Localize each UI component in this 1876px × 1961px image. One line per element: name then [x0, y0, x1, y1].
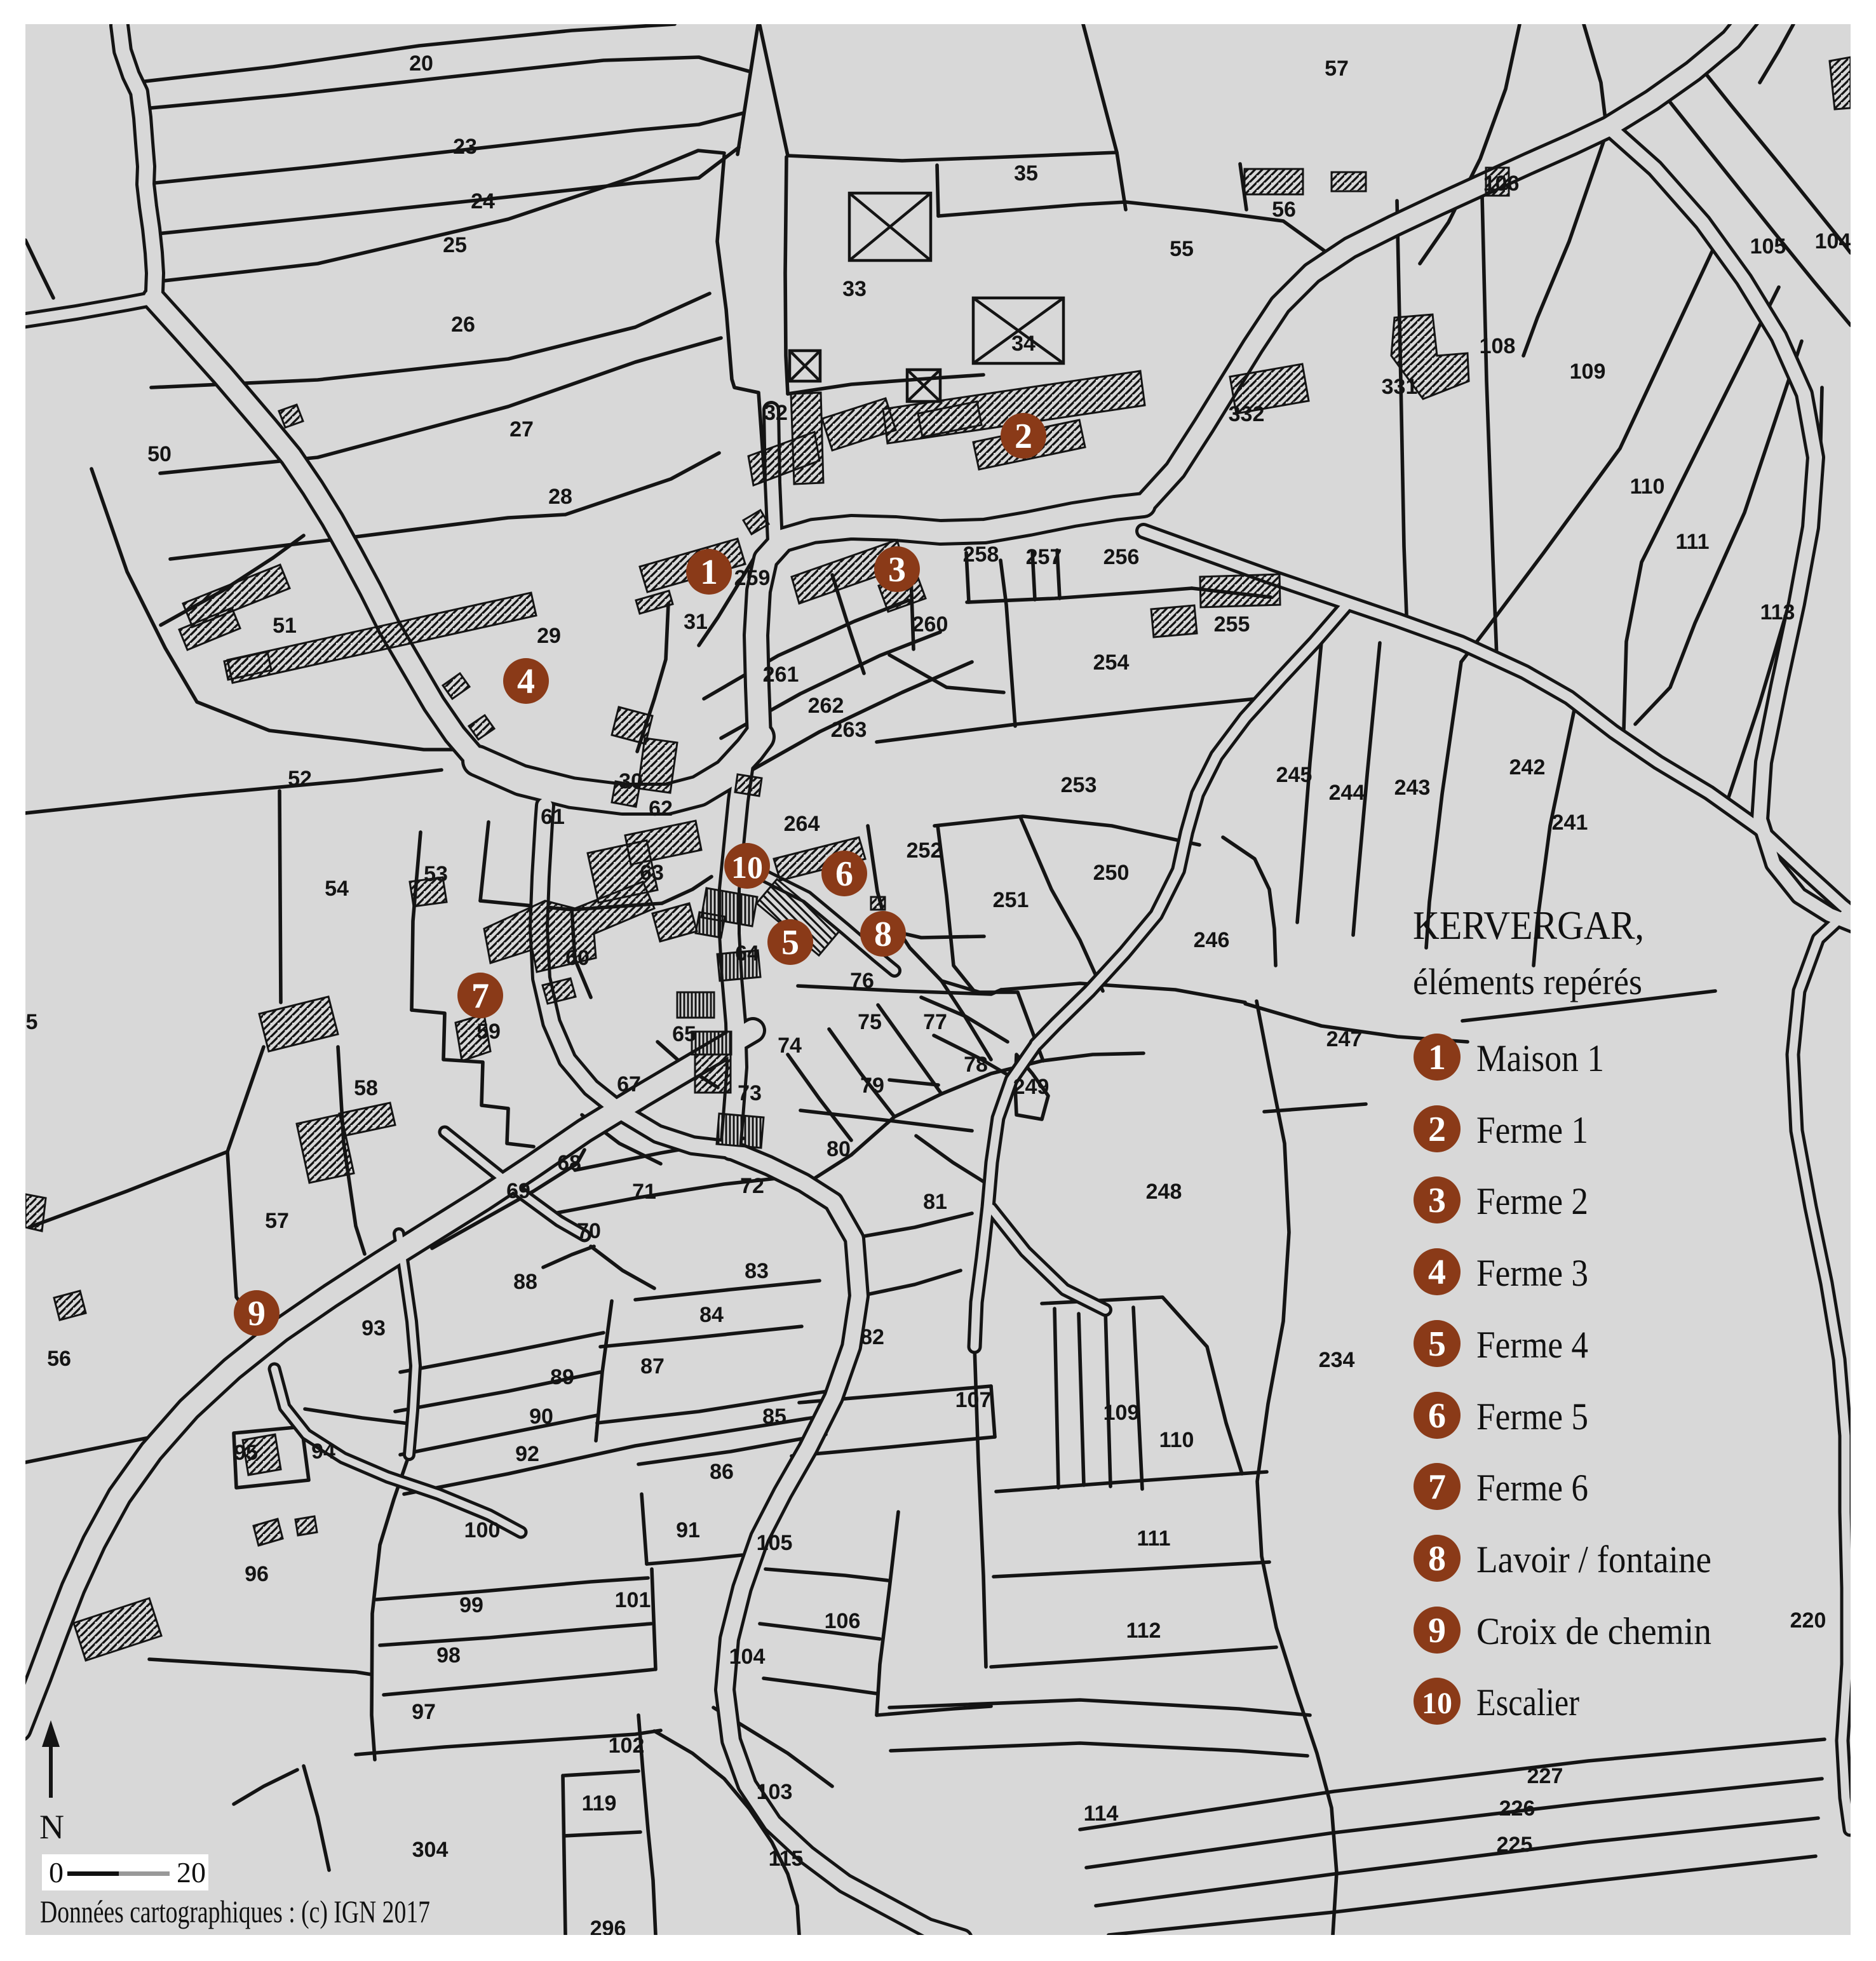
svg-text:74: 74 — [778, 1034, 802, 1058]
svg-text:96: 96 — [245, 1562, 269, 1586]
svg-text:30: 30 — [619, 769, 643, 793]
svg-text:332: 332 — [1229, 402, 1265, 426]
svg-text:225: 225 — [1497, 1833, 1533, 1857]
svg-text:110: 110 — [1159, 1428, 1194, 1452]
svg-text:101: 101 — [615, 1588, 651, 1612]
svg-text:93: 93 — [361, 1316, 386, 1340]
svg-text:111: 111 — [1676, 530, 1710, 554]
svg-text:80: 80 — [827, 1137, 851, 1161]
svg-text:56: 56 — [1272, 198, 1296, 222]
svg-text:70: 70 — [577, 1219, 601, 1243]
svg-text:112: 112 — [1126, 1619, 1161, 1643]
svg-text:119: 119 — [582, 1791, 617, 1816]
svg-text:10: 10 — [1422, 1687, 1452, 1720]
svg-text:104: 104 — [729, 1645, 766, 1669]
svg-text:8: 8 — [1428, 1539, 1446, 1579]
svg-text:27: 27 — [509, 417, 534, 441]
svg-text:106: 106 — [1483, 172, 1520, 196]
svg-text:87: 87 — [640, 1354, 665, 1378]
svg-text:81: 81 — [923, 1190, 947, 1214]
svg-text:105: 105 — [757, 1531, 793, 1555]
svg-text:Ferme 3: Ferme 3 — [1476, 1252, 1588, 1294]
svg-text:304: 304 — [412, 1838, 449, 1862]
svg-text:113: 113 — [1760, 600, 1795, 624]
svg-text:262: 262 — [808, 694, 844, 718]
svg-text:102: 102 — [609, 1734, 645, 1758]
svg-text:67: 67 — [617, 1072, 641, 1096]
svg-text:6: 6 — [1428, 1396, 1446, 1436]
svg-text:84: 84 — [699, 1303, 724, 1327]
svg-text:5: 5 — [26, 1010, 38, 1034]
svg-text:33: 33 — [842, 277, 867, 301]
svg-text:60: 60 — [565, 946, 590, 970]
svg-text:77: 77 — [923, 1010, 947, 1034]
svg-text:85: 85 — [762, 1405, 786, 1429]
svg-text:260: 260 — [912, 612, 948, 637]
svg-text:105: 105 — [1750, 234, 1786, 259]
svg-text:83: 83 — [745, 1259, 769, 1283]
svg-text:71: 71 — [632, 1180, 656, 1204]
svg-text:251: 251 — [993, 888, 1029, 912]
svg-text:58: 58 — [354, 1076, 378, 1100]
svg-text:72: 72 — [740, 1174, 764, 1198]
svg-text:Données cartographiques : (c): Données cartographiques : (c) IGN 2017 — [40, 1894, 430, 1929]
svg-text:111: 111 — [1137, 1526, 1171, 1551]
svg-text:73: 73 — [738, 1081, 762, 1105]
svg-text:KERVERGAR,: KERVERGAR, — [1413, 903, 1644, 948]
svg-text:Ferme 2: Ferme 2 — [1476, 1180, 1588, 1222]
svg-text:Lavoir / fontaine: Lavoir / fontaine — [1476, 1539, 1711, 1580]
svg-text:82: 82 — [860, 1325, 884, 1349]
svg-text:2: 2 — [1428, 1110, 1446, 1149]
svg-text:1: 1 — [1428, 1038, 1446, 1077]
svg-text:100: 100 — [464, 1518, 501, 1542]
svg-text:5: 5 — [781, 923, 799, 962]
svg-text:252: 252 — [907, 839, 943, 863]
svg-text:68: 68 — [557, 1151, 581, 1175]
svg-text:10: 10 — [731, 849, 763, 885]
svg-text:7: 7 — [471, 976, 489, 1016]
svg-text:5: 5 — [1428, 1324, 1446, 1364]
svg-text:25: 25 — [443, 233, 467, 257]
svg-text:245: 245 — [1276, 763, 1313, 787]
svg-text:63: 63 — [640, 861, 664, 885]
svg-text:258: 258 — [963, 542, 999, 567]
svg-text:59: 59 — [476, 1020, 501, 1044]
svg-text:257: 257 — [1026, 545, 1062, 569]
svg-text:2: 2 — [1015, 417, 1032, 456]
svg-text:263: 263 — [831, 718, 867, 742]
svg-text:75: 75 — [858, 1010, 882, 1034]
svg-text:20: 20 — [177, 1856, 206, 1889]
svg-text:29: 29 — [537, 624, 561, 648]
svg-text:249: 249 — [1013, 1075, 1049, 1099]
svg-text:78: 78 — [964, 1053, 988, 1077]
svg-text:0: 0 — [49, 1856, 64, 1889]
svg-text:62: 62 — [649, 797, 673, 821]
svg-text:54: 54 — [325, 877, 349, 901]
svg-text:246: 246 — [1194, 928, 1230, 952]
svg-text:253: 253 — [1061, 773, 1097, 797]
svg-text:7: 7 — [1428, 1467, 1446, 1507]
svg-text:57: 57 — [1325, 57, 1349, 81]
svg-text:3: 3 — [1428, 1181, 1446, 1220]
svg-text:28: 28 — [548, 485, 572, 509]
svg-text:114: 114 — [1084, 1802, 1119, 1826]
svg-text:31: 31 — [684, 610, 708, 634]
svg-text:51: 51 — [273, 614, 297, 638]
svg-text:97: 97 — [412, 1700, 436, 1724]
svg-text:107: 107 — [955, 1388, 992, 1412]
svg-text:115: 115 — [769, 1847, 804, 1871]
svg-text:331: 331 — [1382, 375, 1418, 399]
svg-text:Maison 1: Maison 1 — [1476, 1037, 1604, 1079]
svg-text:220: 220 — [1790, 1608, 1826, 1633]
svg-text:226: 226 — [1499, 1796, 1535, 1821]
svg-text:89: 89 — [550, 1365, 574, 1389]
svg-text:3: 3 — [888, 550, 906, 590]
svg-text:106: 106 — [825, 1609, 861, 1633]
svg-text:264: 264 — [784, 812, 820, 836]
svg-text:éléments repérés: éléments repérés — [1413, 961, 1642, 1002]
svg-text:234: 234 — [1319, 1348, 1355, 1372]
svg-text:9: 9 — [248, 1294, 266, 1333]
svg-text:99: 99 — [459, 1593, 483, 1617]
svg-text:91: 91 — [676, 1518, 700, 1542]
svg-text:65: 65 — [672, 1022, 696, 1046]
svg-text:242: 242 — [1509, 755, 1546, 779]
svg-text:34: 34 — [1011, 332, 1036, 356]
svg-text:76: 76 — [850, 969, 874, 993]
svg-text:35: 35 — [1014, 161, 1038, 185]
svg-text:Ferme 4: Ferme 4 — [1476, 1324, 1588, 1366]
svg-text:53: 53 — [424, 862, 448, 886]
svg-text:261: 261 — [763, 663, 799, 687]
svg-text:56: 56 — [47, 1347, 71, 1371]
svg-text:243: 243 — [1394, 776, 1431, 800]
svg-text:4: 4 — [517, 662, 535, 701]
svg-text:N: N — [39, 1808, 64, 1846]
svg-text:Croix de chemin: Croix de chemin — [1476, 1610, 1711, 1652]
svg-text:247: 247 — [1326, 1027, 1363, 1051]
svg-text:95: 95 — [234, 1441, 258, 1465]
svg-text:32: 32 — [764, 401, 788, 425]
svg-text:103: 103 — [757, 1780, 793, 1804]
svg-text:94: 94 — [311, 1439, 335, 1464]
svg-text:Ferme 5: Ferme 5 — [1476, 1396, 1588, 1438]
svg-text:23: 23 — [453, 135, 477, 159]
svg-text:69: 69 — [506, 1179, 530, 1203]
svg-text:64: 64 — [735, 941, 759, 966]
svg-text:109: 109 — [1103, 1401, 1140, 1425]
svg-text:24: 24 — [471, 189, 495, 213]
svg-text:104: 104 — [1815, 229, 1851, 253]
svg-text:241: 241 — [1552, 811, 1588, 835]
svg-text:8: 8 — [874, 915, 892, 954]
svg-text:Ferme 6: Ferme 6 — [1476, 1467, 1588, 1509]
svg-text:20: 20 — [409, 51, 433, 76]
svg-text:250: 250 — [1093, 861, 1130, 885]
svg-text:26: 26 — [451, 313, 475, 337]
svg-text:110: 110 — [1630, 475, 1665, 499]
svg-text:57: 57 — [265, 1209, 289, 1233]
svg-text:52: 52 — [288, 767, 312, 791]
svg-text:109: 109 — [1570, 360, 1606, 384]
svg-text:259: 259 — [734, 566, 771, 590]
svg-text:254: 254 — [1093, 650, 1130, 675]
svg-text:255: 255 — [1214, 612, 1250, 637]
svg-text:79: 79 — [860, 1074, 884, 1098]
svg-text:1: 1 — [700, 553, 718, 592]
svg-text:244: 244 — [1329, 781, 1365, 805]
svg-text:256: 256 — [1103, 545, 1140, 569]
svg-text:55: 55 — [1170, 237, 1194, 261]
svg-text:108: 108 — [1480, 334, 1516, 358]
svg-text:Escalier: Escalier — [1476, 1681, 1579, 1723]
svg-text:227: 227 — [1527, 1764, 1563, 1788]
svg-text:61: 61 — [541, 805, 565, 829]
svg-text:90: 90 — [529, 1405, 553, 1429]
svg-text:Ferme 1: Ferme 1 — [1476, 1109, 1588, 1151]
svg-text:9: 9 — [1428, 1611, 1446, 1650]
svg-text:50: 50 — [147, 442, 172, 466]
svg-text:88: 88 — [513, 1270, 537, 1294]
svg-text:248: 248 — [1146, 1180, 1182, 1204]
svg-text:98: 98 — [436, 1643, 461, 1668]
svg-text:86: 86 — [710, 1460, 734, 1484]
svg-text:6: 6 — [835, 854, 853, 894]
svg-text:4: 4 — [1428, 1253, 1446, 1292]
svg-text:92: 92 — [515, 1442, 539, 1466]
